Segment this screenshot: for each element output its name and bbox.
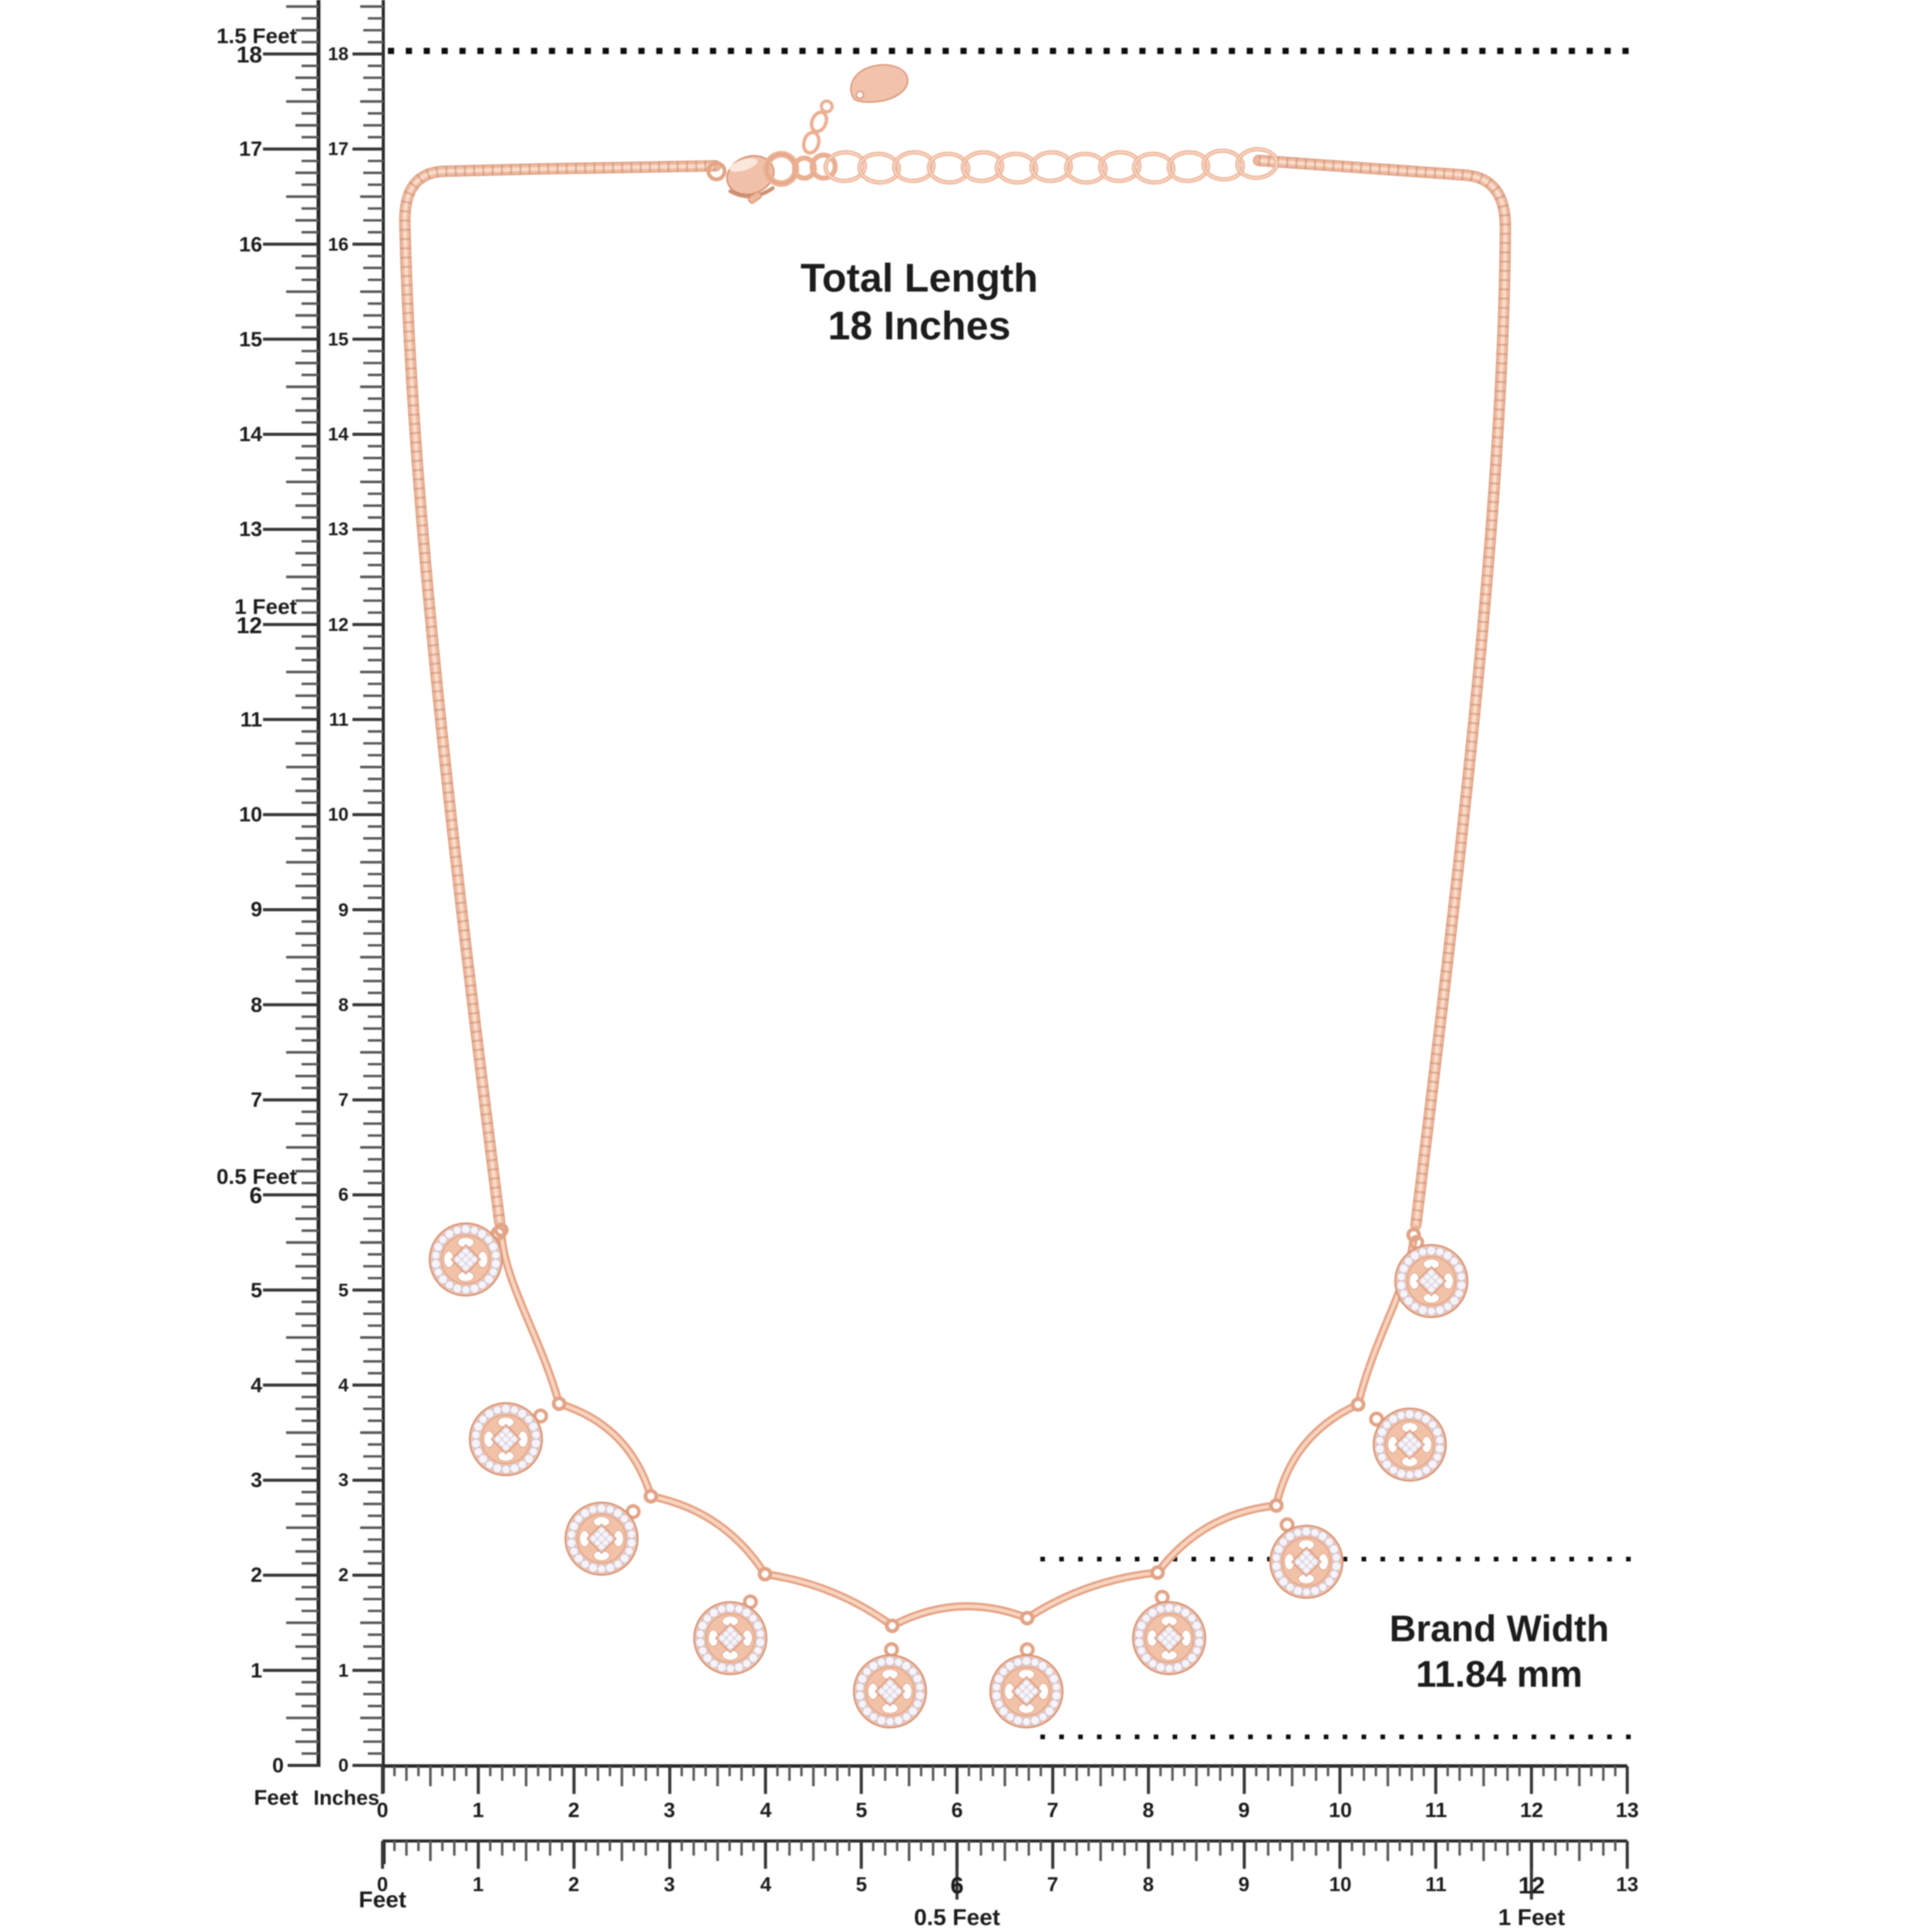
svg-text:8: 8 xyxy=(1142,1799,1154,1822)
svg-text:4: 4 xyxy=(760,1873,772,1896)
svg-text:0: 0 xyxy=(339,1755,349,1776)
svg-text:1 Feet: 1 Feet xyxy=(234,595,297,619)
svg-text:6: 6 xyxy=(950,1872,963,1899)
svg-text:4: 4 xyxy=(760,1799,771,1822)
svg-text:4: 4 xyxy=(339,1375,349,1396)
svg-text:13: 13 xyxy=(239,518,262,541)
svg-text:18 Inches: 18 Inches xyxy=(827,304,1010,349)
svg-text:2: 2 xyxy=(568,1873,579,1896)
svg-text:15: 15 xyxy=(328,329,349,350)
svg-text:4: 4 xyxy=(251,1374,262,1397)
svg-text:Total Length: Total Length xyxy=(801,256,1038,301)
svg-text:2: 2 xyxy=(339,1565,349,1586)
svg-text:8: 8 xyxy=(1143,1873,1154,1896)
svg-text:2: 2 xyxy=(568,1799,579,1822)
svg-text:Feet: Feet xyxy=(359,1887,406,1913)
svg-text:3: 3 xyxy=(663,1799,675,1822)
svg-text:1 Feet: 1 Feet xyxy=(1498,1905,1566,1928)
svg-text:12: 12 xyxy=(1518,1872,1545,1899)
svg-text:10: 10 xyxy=(1329,1799,1352,1822)
svg-text:7: 7 xyxy=(1047,1873,1058,1896)
svg-text:Brand Width: Brand Width xyxy=(1390,1609,1609,1650)
svg-text:5: 5 xyxy=(339,1280,349,1301)
svg-text:15: 15 xyxy=(239,328,262,351)
svg-text:3: 3 xyxy=(664,1873,675,1896)
svg-text:2: 2 xyxy=(251,1563,262,1586)
svg-text:12: 12 xyxy=(1520,1799,1543,1822)
svg-text:1: 1 xyxy=(339,1661,349,1681)
svg-text:3: 3 xyxy=(251,1468,262,1492)
svg-text:0: 0 xyxy=(272,1754,284,1777)
svg-text:7: 7 xyxy=(251,1088,262,1111)
svg-text:Inches: Inches xyxy=(313,1786,379,1809)
svg-text:11: 11 xyxy=(329,710,349,730)
svg-text:6: 6 xyxy=(951,1799,962,1822)
svg-text:14: 14 xyxy=(239,423,262,446)
svg-text:1: 1 xyxy=(472,1799,484,1822)
svg-text:10: 10 xyxy=(328,804,349,825)
svg-text:5: 5 xyxy=(251,1279,262,1302)
svg-text:10: 10 xyxy=(239,803,262,826)
svg-text:8: 8 xyxy=(339,995,349,1016)
svg-text:13: 13 xyxy=(328,519,349,540)
svg-text:1.5 Feet: 1.5 Feet xyxy=(217,24,297,48)
svg-text:11: 11 xyxy=(1425,1873,1447,1896)
svg-text:9: 9 xyxy=(1239,1873,1249,1896)
svg-text:11: 11 xyxy=(240,708,262,731)
svg-text:7: 7 xyxy=(1047,1799,1058,1822)
svg-text:14: 14 xyxy=(328,424,349,445)
svg-text:9: 9 xyxy=(1238,1799,1249,1822)
svg-text:10: 10 xyxy=(1330,1873,1352,1896)
svg-text:13: 13 xyxy=(1616,1873,1639,1896)
svg-text:0.5 Feet: 0.5 Feet xyxy=(914,1905,1000,1928)
svg-text:16: 16 xyxy=(328,234,349,255)
svg-text:9: 9 xyxy=(251,898,262,921)
svg-text:3: 3 xyxy=(339,1470,349,1491)
svg-text:5: 5 xyxy=(856,1873,867,1896)
svg-text:1: 1 xyxy=(251,1659,262,1682)
svg-text:11.84 mm: 11.84 mm xyxy=(1416,1654,1583,1695)
svg-text:1: 1 xyxy=(473,1873,484,1896)
svg-text:0: 0 xyxy=(376,1799,388,1822)
svg-text:0.5 Feet: 0.5 Feet xyxy=(217,1165,297,1189)
svg-text:16: 16 xyxy=(239,233,262,256)
svg-text:13: 13 xyxy=(1616,1799,1639,1822)
svg-text:Feet: Feet xyxy=(254,1785,298,1809)
svg-text:17: 17 xyxy=(239,137,262,160)
svg-text:18: 18 xyxy=(328,44,349,65)
svg-text:12: 12 xyxy=(328,615,349,636)
svg-text:7: 7 xyxy=(339,1090,349,1111)
svg-text:17: 17 xyxy=(328,139,349,160)
svg-text:6: 6 xyxy=(339,1185,349,1205)
svg-text:11: 11 xyxy=(1425,1799,1448,1822)
svg-text:8: 8 xyxy=(251,993,262,1017)
svg-text:9: 9 xyxy=(339,900,349,921)
svg-text:5: 5 xyxy=(855,1799,867,1822)
